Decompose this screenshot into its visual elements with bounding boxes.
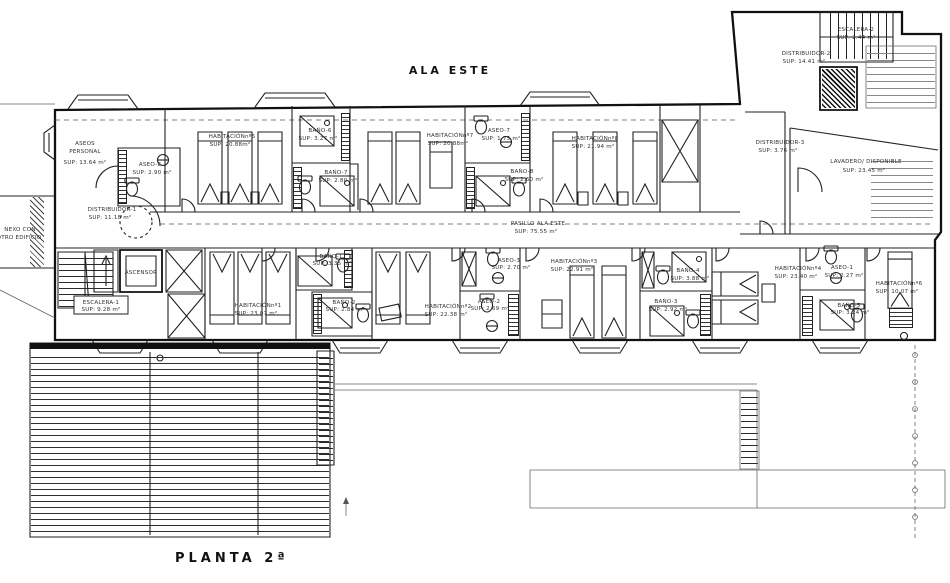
room-label: SUP: 3.88 m² xyxy=(670,275,709,282)
room-label: SUP: 11.18 m² xyxy=(89,214,132,221)
door-arc xyxy=(96,166,118,188)
corridor-label: SUP: 75.55 m² xyxy=(515,228,558,235)
floor-title: PLANTA 2ª xyxy=(175,551,289,566)
room-label: DISTRIBUIDOR-2 xyxy=(782,51,831,57)
wing-title: ALA ESTE xyxy=(409,64,491,77)
room-label: BAÑO-8 xyxy=(510,168,533,175)
room-label: ASEO-2 xyxy=(478,299,500,305)
room-label: SUP: 20.88m² xyxy=(210,141,251,148)
door-arc xyxy=(262,248,275,261)
room-label: BAÑO-7 xyxy=(324,169,347,176)
toilet xyxy=(298,176,312,194)
room-label: SUP: 13.64 m² xyxy=(64,159,107,166)
sink xyxy=(493,273,504,284)
wing: ESCALERA-2 SUP: 2.44 m² DISTRIBUIDOR-2 S… xyxy=(740,12,938,234)
room-label: SUP: 23.07 m² xyxy=(235,310,278,317)
door-arc xyxy=(540,199,553,212)
room-label: SUP: 2.44 m² xyxy=(836,34,875,41)
room-label: SUP: 3.76 m² xyxy=(758,147,797,154)
room-label: HABITACIÓNnº3 xyxy=(551,258,598,265)
lower-rooms: HABITACIÓNnº1 SUP: 23.07 m² BAÑO-1 SUP: … xyxy=(205,246,923,340)
door-arc xyxy=(452,248,465,261)
room-label: HABITACIÓNnº1 xyxy=(235,302,282,309)
room-label: BAÑO-1 xyxy=(319,253,342,260)
room-label: SUP: 2.92 m² xyxy=(648,306,687,313)
toilet xyxy=(474,116,488,134)
nightstand xyxy=(578,192,588,205)
door-arc xyxy=(760,221,773,234)
door-arc xyxy=(632,248,645,261)
room-label: SUP: 20.88m² xyxy=(428,140,469,147)
room-label: ASEO-3 xyxy=(498,258,520,264)
door-arc xyxy=(806,248,819,261)
connector-label: NEXO CON xyxy=(4,227,35,233)
desk xyxy=(379,304,401,321)
appliance xyxy=(901,333,908,340)
room-label: SUP: 23.40 m² xyxy=(775,273,818,280)
room-label: ESCALERA-2 xyxy=(838,27,874,33)
toilet xyxy=(686,310,700,328)
room-label: SUP: 3.24 m² xyxy=(830,309,869,316)
room-label: SUP: 3.27 m² xyxy=(298,135,337,142)
room-label: SUP: 23.45 m² xyxy=(843,167,886,174)
direction-arrow xyxy=(343,497,349,504)
room-label: BAÑO-6 xyxy=(308,127,331,134)
room-label: ASCENSOR xyxy=(125,270,157,276)
room-label: BAÑO-3 xyxy=(654,298,677,305)
room-label: SUP: 2.70 m² xyxy=(491,264,530,271)
door-arc xyxy=(798,168,822,192)
desk xyxy=(430,142,452,188)
upper-rooms: ASEOS PERSONAL SUP: 13.64 m² ASEO-8 SUP:… xyxy=(64,105,700,212)
exterior xyxy=(335,345,945,540)
room-label: SUP: 22.38 m² xyxy=(425,311,468,318)
corridor-label: PASILLO ALA ESTE xyxy=(511,221,565,227)
room-label: HABITACIÓNnº7 xyxy=(427,132,474,139)
floor-plan-svg: NEXO CON OTRO EDIFICIO PASILLO ALA ESTE … xyxy=(0,0,950,583)
room-label: LAVADERO/ DISPONIBLE xyxy=(830,159,902,165)
room-label: DISTRIBUIDOR-1 xyxy=(88,207,137,213)
nightstand xyxy=(618,192,628,205)
room-label: HABITACIÓNnº5 xyxy=(209,133,256,140)
corridor: PASILLO ALA ESTE SUP: 75.55 m² xyxy=(55,212,935,248)
room-label: SUP: 2.90 m² xyxy=(132,169,171,176)
toilet xyxy=(125,178,139,196)
room-label: SUP: 21.94 m² xyxy=(572,143,615,150)
room-label: HABITACIÓNnº4 xyxy=(775,265,822,272)
room-label: SUP: 14.41 m² xyxy=(783,58,826,65)
nightstand xyxy=(762,284,775,302)
terrace xyxy=(30,343,334,537)
toilet xyxy=(656,266,670,284)
room-label: BAÑO-4 xyxy=(676,267,699,274)
room-label: SUP: 22.91 m² xyxy=(551,266,594,273)
door-arc xyxy=(716,248,729,261)
toilet xyxy=(824,246,838,264)
terrace-ladder-frame xyxy=(317,351,334,465)
room-label: SUP: 1.75 m² xyxy=(481,135,520,142)
door-arc xyxy=(867,248,880,261)
room-label: ASEOS xyxy=(75,141,95,147)
floor-plan-page: NEXO CON OTRO EDIFICIO PASILLO ALA ESTE … xyxy=(0,0,950,583)
room-label: BAÑO-5 xyxy=(837,302,860,309)
room-label: SUP: 2.60 m² xyxy=(504,176,543,183)
room-label: DISTRIBUIDOR-3 xyxy=(756,140,805,146)
core: DISTRIBUIDOR-1 SUP: 11.18 m² ASCENSOR ES… xyxy=(58,196,205,338)
room-label: BAÑO-2 xyxy=(332,299,355,306)
room-label: SUP: 9.28 m² xyxy=(81,306,120,313)
room-label: SUP: 3.35 m² xyxy=(312,260,351,267)
door-arc xyxy=(182,199,195,212)
room-label: SUP: 2.69 m² xyxy=(470,305,509,312)
door-arc xyxy=(526,248,539,261)
room-label: SUP: 10.07 m² xyxy=(876,288,919,295)
room-label: HABITACIÓNnº8 xyxy=(572,135,619,142)
room-label: ASEO-7 xyxy=(488,128,510,134)
room-label: HABITACIÓNnº2 xyxy=(425,303,472,310)
room-label: SUP: 2.80 m² xyxy=(318,177,357,184)
room-label: ASEO-8 xyxy=(139,162,161,168)
room-label: ASEO-1 xyxy=(831,265,853,271)
room-label: ESCALERA-1 xyxy=(83,300,120,306)
room-label: PERSONAL xyxy=(69,149,101,155)
room-label: SUP: 2.84 m² xyxy=(325,306,364,313)
connector-label: OTRO EDIFICIO xyxy=(0,235,42,241)
door-arc xyxy=(302,199,315,212)
sink xyxy=(487,321,498,332)
room-label: HABITACIÓNnº6 xyxy=(876,280,923,287)
room-label: SUP: 2.27 m² xyxy=(824,272,863,279)
